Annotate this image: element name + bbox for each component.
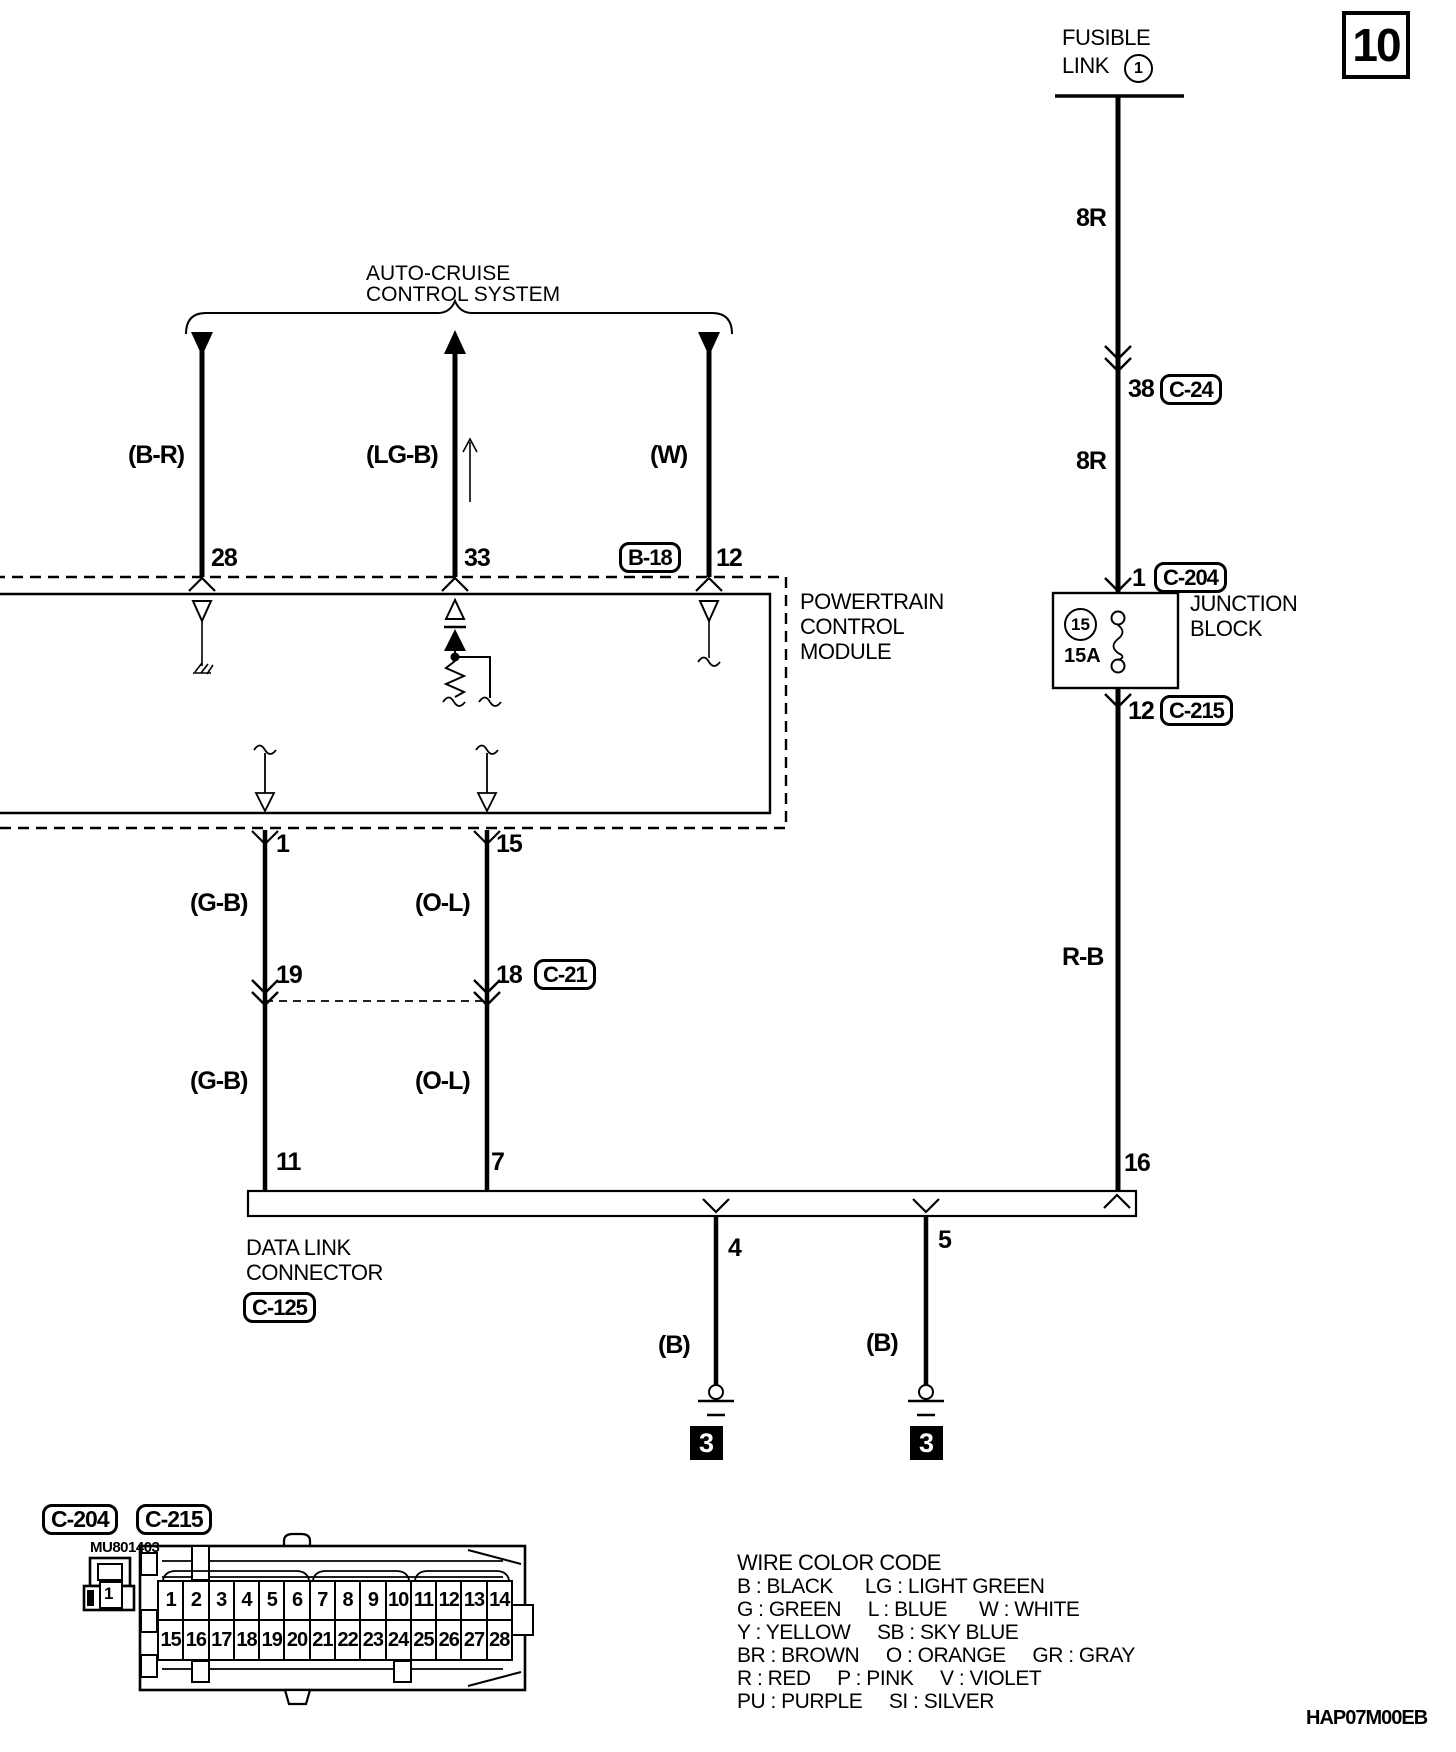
dlc-label-line2: CONNECTOR (246, 1261, 383, 1284)
ground-ref-number: 3 (699, 1428, 714, 1459)
connector-ref-b18[interactable]: B-18 (619, 542, 681, 573)
junction-block-label-line2: BLOCK (1190, 617, 1262, 640)
connector-pin-cell: 7 (309, 1580, 336, 1621)
connector-pin-cell: 27 (460, 1619, 487, 1661)
junction-block-label-line1: JUNCTION (1190, 592, 1297, 615)
wire-color-code-line: PU : PURPLE SI : SILVER (737, 1691, 994, 1713)
pcm-pin-15: 15 (496, 831, 522, 857)
ground-ref-number: 3 (919, 1428, 934, 1459)
dlc-pin-5: 5 (938, 1227, 951, 1253)
connector-pin-cell: 5 (258, 1580, 285, 1621)
dlc-pin-16: 16 (1124, 1150, 1150, 1176)
dlc-label-line1: DATA LINK (246, 1236, 351, 1259)
diode-icon (444, 629, 466, 651)
wire-color-code-line: R : RED P : PINK V : VIOLET (737, 1668, 1041, 1690)
wire-color-b-left: (B) (658, 1332, 690, 1358)
jb-entry-pin-1: 1 (1132, 565, 1145, 591)
jb-exit-pin-12: 12 (1128, 698, 1154, 724)
diagnosis-wire-g-b (252, 830, 278, 1208)
open-arrow-icon (193, 601, 211, 621)
dlc-pin-4: 4 (728, 1235, 741, 1261)
fuse-number-circle: 15 (1064, 608, 1097, 641)
wire-color-o-l-upper: (O-L) (415, 890, 470, 916)
connector-pin-cell: 15 (157, 1619, 184, 1661)
splice-pin-38: 38 (1128, 376, 1154, 402)
wire-color-b-right: (B) (866, 1330, 898, 1356)
pcm-boundary (0, 577, 786, 828)
wire-color-r-b: R-B (1062, 944, 1103, 970)
connector-pin-cell: 16 (182, 1619, 209, 1661)
connector-top-cap (284, 1534, 310, 1546)
pcm-pin-28: 28 (211, 545, 237, 571)
wire-color-code-line: BR : BROWN O : ORANGE GR : GRAY (737, 1645, 1135, 1667)
auto-cruise-title-line1: AUTO-CRUISE (366, 263, 510, 285)
connector-pin-cell: 20 (283, 1619, 310, 1661)
wire-color-8r-lower: 8R (1068, 448, 1106, 474)
dlc-pin-11: 11 (276, 1149, 300, 1175)
connector-ref-c204[interactable]: C-204 (1154, 562, 1227, 593)
wire-color-b-r: (B-R) (128, 442, 184, 468)
open-arrow-icon (446, 600, 464, 619)
splice-pin-19: 19 (276, 962, 302, 988)
connector-pin-cell: 2 (182, 1580, 209, 1621)
wire-break-squiggle (479, 698, 501, 707)
pcm-label-line1: POWERTRAIN (800, 590, 944, 613)
connector-pin-cell: 3 (208, 1580, 235, 1621)
open-arrowhead-icon (478, 793, 496, 811)
connector-pin-cell: 23 (359, 1619, 386, 1661)
connector-pin-cell: 26 (435, 1619, 462, 1661)
connector-pin-cell: 11 (410, 1580, 437, 1621)
connector-pin-cell: 4 (233, 1580, 260, 1621)
wire-color-code-title: WIRE COLOR CODE (737, 1551, 941, 1574)
connector-pin-cell: 17 (208, 1619, 235, 1661)
connector-part-number: MU801403 (90, 1540, 159, 1556)
connector-pin-cell: 13 (460, 1580, 487, 1621)
pcm-label-line3: MODULE (800, 640, 891, 663)
wiring-diagram-page: 10 FUSIBLE LINK 1 8R 38 C-24 8R 1 C-204 … (0, 0, 1456, 1752)
wire-color-8r-upper: 8R (1068, 205, 1106, 231)
c215-pin-row-1: 1234567891011121314 (159, 1580, 513, 1621)
figure-code: HAP07M00EB (1306, 1708, 1427, 1729)
wire-color-g-b-upper: (G-B) (190, 890, 247, 916)
connector-pin-cell: 21 (309, 1619, 336, 1661)
c204-pin-1: 1 (104, 1585, 113, 1603)
wiring-lines-layer (0, 0, 1456, 1752)
dlc-pin-7: 7 (491, 1149, 504, 1175)
data-link-connector-bar (248, 1191, 1136, 1216)
wire-color-code-line: Y : YELLOW SB : SKY BLUE (737, 1622, 1018, 1644)
connector-view-label-c204[interactable]: C-204 (42, 1504, 118, 1535)
connector-pin-cell: 22 (334, 1619, 361, 1661)
chassis-ground-icon (193, 663, 213, 674)
connector-pin-cell: 10 (385, 1580, 412, 1621)
connector-view-label-c215[interactable]: C-215 (136, 1504, 212, 1535)
connector-pin-cell: 14 (486, 1580, 513, 1621)
fusible-link-label-line2: LINK (1062, 54, 1109, 77)
fuse-rating: 15A (1064, 646, 1101, 667)
connector-pin-cell: 18 (233, 1619, 260, 1661)
connector-pin-cell: 6 (283, 1580, 310, 1621)
auto-cruise-title-line2: CONTROL SYSTEM (366, 284, 560, 306)
wire-color-g-b-lower: (G-B) (190, 1068, 247, 1094)
wire-break-squiggle (698, 658, 720, 667)
connector-pin-cell: 9 (359, 1580, 386, 1621)
pcm-pin-33: 33 (464, 545, 490, 571)
fusible-link-number-circle: 1 (1124, 54, 1153, 83)
fuse-number: 15 (1071, 615, 1090, 635)
wire-color-w: (W) (650, 442, 687, 468)
wire-break-squiggle (254, 746, 276, 755)
fusible-link-label-line1: FUSIBLE (1062, 26, 1150, 49)
wire-color-code-line: B : BLACK LG : LIGHT GREEN (737, 1576, 1044, 1598)
wire-break-squiggle (476, 746, 498, 755)
connector-pin-cell: 24 (385, 1619, 412, 1661)
open-arrow-icon (700, 601, 718, 621)
connector-ref-c24[interactable]: C-24 (1160, 374, 1222, 405)
connector-bottom-latch (285, 1690, 310, 1704)
c215-pin-row-2: 1516171819202122232425262728 (159, 1619, 513, 1661)
ground-ref-left[interactable]: 3 (690, 1426, 723, 1460)
connector-ref-c21[interactable]: C-21 (534, 959, 596, 990)
wire-color-code-line: G : GREEN L : BLUE W : WHITE (737, 1599, 1079, 1621)
resistor-icon (446, 661, 464, 697)
connector-pin-cell: 25 (410, 1619, 437, 1661)
pcm-label-line2: CONTROL (800, 615, 904, 638)
pcm-pin-1: 1 (276, 831, 289, 857)
splice-pin-18: 18 (496, 962, 522, 988)
connector-pin-cell: 1 (157, 1580, 184, 1621)
page-number-box: 10 (1342, 11, 1410, 79)
pcm-internal-circuit (193, 600, 720, 811)
connector-ref-c125[interactable]: C-125 (243, 1292, 316, 1323)
connector-pin-cell: 19 (258, 1619, 285, 1661)
open-arrowhead-icon (256, 793, 274, 811)
connector-pin-cell: 28 (486, 1619, 513, 1661)
wire-color-lg-b: (LG-B) (366, 442, 438, 468)
connector-pin-cell: 12 (435, 1580, 462, 1621)
pcm-pin-12: 12 (716, 545, 742, 571)
connector-ref-c215[interactable]: C-215 (1160, 695, 1233, 726)
wire-break-squiggle (443, 698, 465, 707)
fusible-link-number: 1 (1134, 60, 1143, 78)
page-number: 10 (1352, 18, 1399, 72)
ground-ref-right[interactable]: 3 (910, 1426, 943, 1460)
wire-color-o-l-lower: (O-L) (415, 1068, 470, 1094)
connector-pin-cell: 8 (334, 1580, 361, 1621)
